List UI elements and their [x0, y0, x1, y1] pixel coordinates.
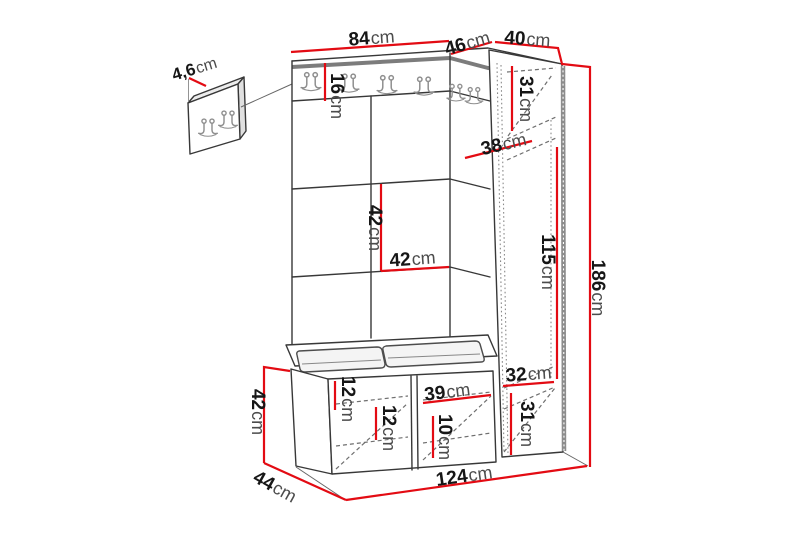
dim-label-bench-height: 42cm — [247, 389, 268, 435]
dim-label-bench-shelf-clearance: 12cm — [378, 405, 399, 451]
seat-cushion — [383, 341, 484, 367]
dim-label-cabinet-width: 40cm — [504, 27, 551, 51]
dim-label-wall-width: 84cm — [348, 26, 395, 50]
panel-grid-line — [292, 179, 490, 189]
dim-label-cabinet-bottom: 31cm — [516, 401, 537, 447]
dim-label-bench-depth: 44cm — [249, 467, 300, 508]
dim-label-rail-height: 16cm — [326, 73, 347, 119]
floor-edge — [563, 452, 588, 466]
detail-panel-inset — [188, 77, 292, 154]
bench-divider — [417, 376, 418, 469]
coat-hook-icon — [301, 73, 321, 91]
dim-label-cabinet-middle: 115cm — [537, 234, 558, 290]
dim-label-panel-height: 42cm — [364, 205, 385, 251]
diagram-canvas: 4,6cm 84cm 46cm 40cm 16cm 42cm 42cm 31cm… — [0, 0, 800, 533]
dim-label-bench-top-clearance: 12cm — [337, 376, 358, 422]
detail-callout-line — [241, 84, 292, 107]
bench-divider — [411, 376, 412, 470]
dim-label-bench-bottom-clearance: 10cm — [434, 414, 455, 460]
dim-label-total-height: 186cm — [587, 260, 608, 317]
furniture-dimension-diagram: 4,6cm 84cm 46cm 40cm 16cm 42cm 42cm 31cm… — [0, 0, 800, 533]
bench-side-face — [291, 369, 332, 474]
seat-cushion — [297, 347, 385, 372]
coat-hook-icon — [377, 76, 397, 94]
dim-label-corner-width: 46cm — [442, 27, 492, 60]
dim-label-cabinet-top: 31cm — [515, 76, 536, 122]
